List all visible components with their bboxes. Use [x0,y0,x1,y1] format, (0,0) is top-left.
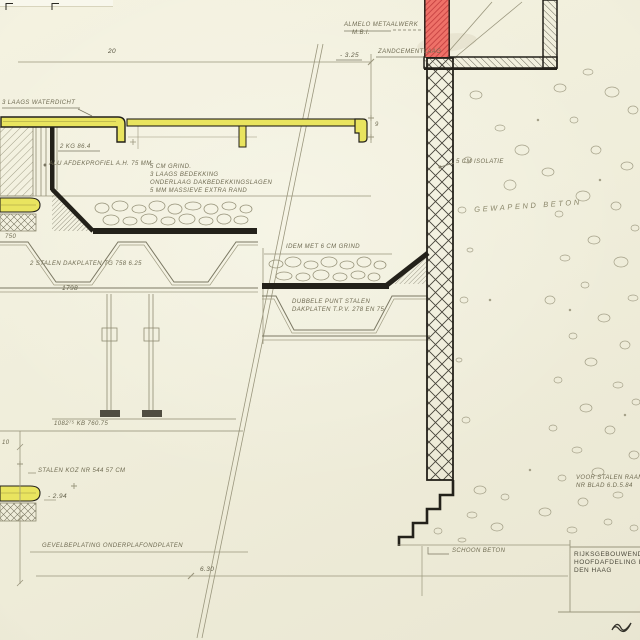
concrete-column [399,58,453,546]
dim-9: 9 [375,122,379,129]
note-waterproof: 3 LAAGS WATERDICHT [2,100,75,107]
titleblock-line-2: HOOFDAFDELING B [574,559,640,567]
signature-mark [612,623,631,631]
dim-hanger: 1082⁷⁵ KB 760.75 [54,421,108,428]
dim-1798: 1798 [62,285,78,292]
note-insulation: 5 CM ISOLATIE [456,159,504,166]
note-steel-window-1: VOOR STALEN RAAM [576,475,640,482]
spec-line-4: 5 MM MASSIEVE EXTRA RAND [150,188,247,195]
spec-line-1: 5 CM GRIND. [150,164,191,171]
note-metalwork-1: ALMELO METAALWERK [344,22,418,29]
spec-line-3: ONDERLAAG DAKBEDEKKINGSLAGEN [150,180,272,187]
coping-profiles [1,117,367,147]
roof-right [262,248,430,344]
ceiling-hangers [0,294,243,431]
titleblock-line-3: DEN HAAG [574,567,612,575]
level-sill: - 2.94 [48,493,67,500]
dim-630: 6.30 [200,566,214,573]
roof-right-gravel [269,257,386,281]
note-kg-ref: 2 KG 86.4 [60,144,91,151]
drawing-sheet: 20 9 ALMELO METAALWERK M.B.I. - 3.25 ZAN… [0,0,640,640]
note-cement-layer: ZANDCEMENTLAAG [378,49,441,56]
foundation-steps [399,480,453,546]
note-deck-right-1: DUBBELE PUNT STALEN [292,299,370,306]
note-alu-profile: ALU AFDEKPROFIEL A.H. 75 MM [49,161,152,168]
dim-20: 20 [108,48,116,55]
note-fairfaced-concrete: SCHOON BETON [452,548,505,555]
note-deck-left: 2 STALEN DAKPLATEN TG 758 6.25 [30,261,142,268]
level-top: - 3.25 [340,52,359,59]
note-facade: GEVELBEPLATING ONDERPLAFONDPLATEN [42,543,183,550]
dim-750: 750 [5,234,16,241]
note-steel-window-2: NR BLAD 6.D.5.84 [576,483,633,490]
concrete-aggregate [434,69,640,542]
upper-sill [0,198,40,231]
dim-10: 10 [2,440,9,447]
note-steel-frame: STALEN KOZ NR 544 57 CM [38,468,125,475]
titleblock-line-1: RIJKSGEBOUWENDI [574,551,640,559]
note-gravel-idem: IDEM MET 6 CM GRIND [286,244,360,251]
roof-left-gravel [95,201,252,225]
lower-sill [0,431,77,586]
spec-line-2: 3 LAAGS BEDEKKING [150,172,219,179]
note-deck-right-2: DAKPLATEN T.P.V. 278 EN 75 [292,307,384,314]
note-metalwork-2: M.B.I. [352,30,370,37]
